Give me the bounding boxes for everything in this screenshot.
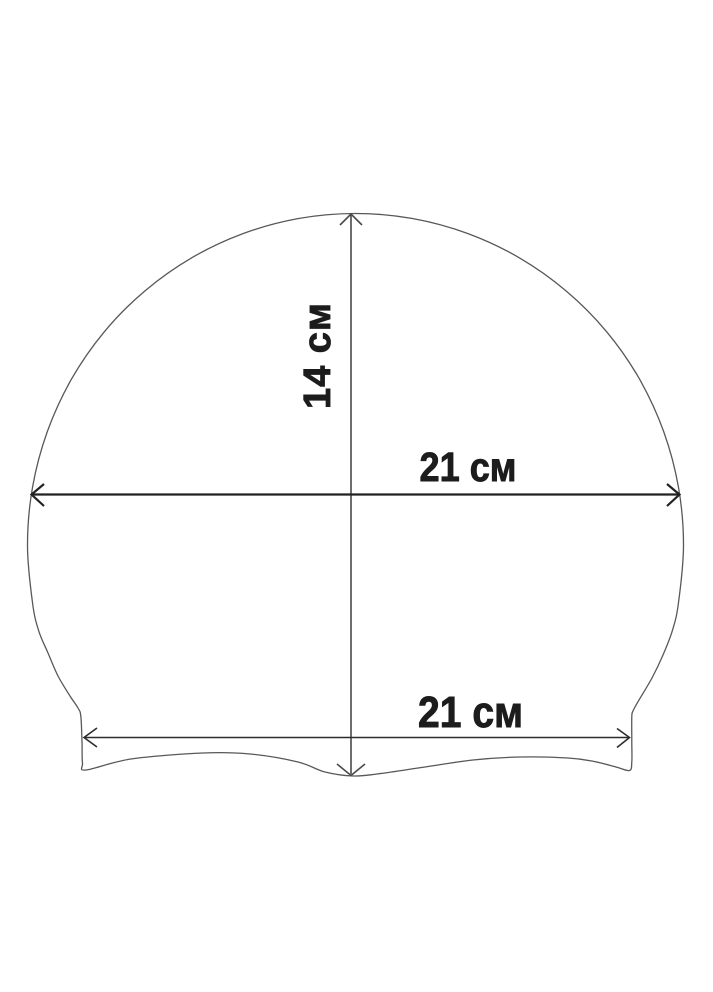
svg-text:21 см: 21 см: [420, 444, 517, 490]
svg-text:14 см: 14 см: [297, 303, 339, 409]
svg-text:21 см: 21 см: [418, 688, 523, 737]
